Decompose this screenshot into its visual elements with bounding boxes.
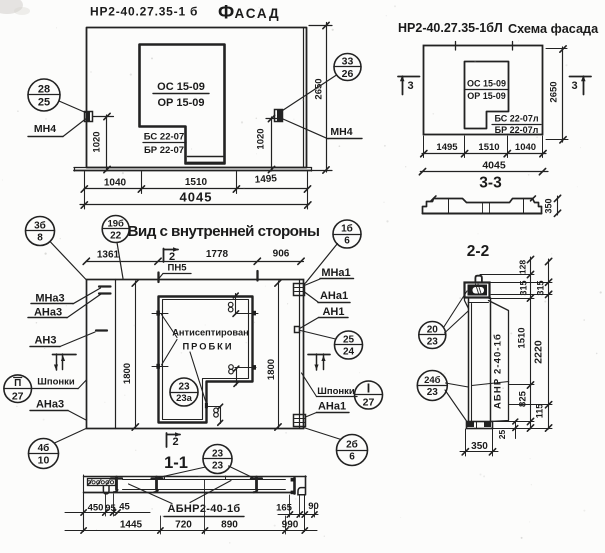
svg-text:Ф: Ф <box>218 3 234 24</box>
svg-text:1800: 1800 <box>266 359 277 380</box>
svg-text:2650: 2650 <box>314 78 325 99</box>
svg-text:4б: 4б <box>38 442 50 454</box>
svg-text:ОР 15-09: ОР 15-09 <box>467 91 506 101</box>
svg-text:МНа3: МНа3 <box>35 293 64 305</box>
svg-text:10: 10 <box>38 454 50 466</box>
svg-text:115: 115 <box>535 404 545 419</box>
svg-text:ОС 15-09: ОС 15-09 <box>467 79 506 89</box>
svg-text:ОР 15-09: ОР 15-09 <box>157 97 204 109</box>
svg-text:1510: 1510 <box>478 142 499 153</box>
svg-text:АНа1: АНа1 <box>320 290 348 302</box>
svg-text:ОС 15-09: ОС 15-09 <box>157 81 205 93</box>
svg-text:890: 890 <box>221 520 238 531</box>
svg-text:23: 23 <box>178 382 190 393</box>
svg-text:БР 22-07л: БР 22-07л <box>495 125 539 135</box>
svg-text:1495: 1495 <box>254 173 277 186</box>
svg-text:20: 20 <box>427 325 439 336</box>
svg-text:23: 23 <box>427 337 439 348</box>
svg-text:1-1: 1-1 <box>164 454 188 472</box>
svg-text:АНа1: АНа1 <box>318 401 346 413</box>
svg-text:ПРОБКИ: ПРОБКИ <box>182 342 233 352</box>
svg-text:НР2-40.27.35-1бЛ: НР2-40.27.35-1бЛ <box>398 21 503 35</box>
svg-text:МН4: МН4 <box>34 123 56 135</box>
svg-text:П: П <box>14 378 21 389</box>
svg-text:1778: 1778 <box>206 249 229 260</box>
svg-text:6: 6 <box>344 236 350 247</box>
svg-text:МНа1: МНа1 <box>321 267 350 279</box>
svg-text:23: 23 <box>427 387 439 398</box>
svg-text:1361: 1361 <box>97 250 120 261</box>
svg-text:АСАД: АСАД <box>235 6 281 21</box>
svg-text:25: 25 <box>38 96 50 108</box>
svg-text:Шпонки: Шпонки <box>37 377 75 388</box>
svg-text:25: 25 <box>343 335 355 346</box>
svg-text:27: 27 <box>363 397 375 409</box>
svg-text:95: 95 <box>105 503 116 514</box>
svg-text:19б: 19б <box>107 219 124 230</box>
svg-text:720: 720 <box>175 520 192 531</box>
svg-text:4045: 4045 <box>482 159 506 171</box>
svg-text:3: 3 <box>571 80 577 92</box>
svg-text:3-3: 3-3 <box>479 175 502 192</box>
svg-text:1040: 1040 <box>104 178 127 189</box>
svg-text:8: 8 <box>37 233 43 244</box>
svg-text:1510: 1510 <box>185 177 208 188</box>
svg-text:1800: 1800 <box>122 363 133 384</box>
svg-text:Схема фасада: Схема фасада <box>508 22 599 36</box>
svg-text:Шпонки: Шпонки <box>317 386 355 397</box>
svg-text:6: 6 <box>349 452 355 463</box>
svg-text:22: 22 <box>110 231 122 242</box>
svg-text:1495: 1495 <box>436 142 458 153</box>
svg-text:ПН5: ПН5 <box>168 263 188 274</box>
svg-text:БР 22-07: БР 22-07 <box>144 145 184 156</box>
svg-text:906: 906 <box>273 249 290 260</box>
svg-text:165: 165 <box>276 503 293 514</box>
svg-text:23: 23 <box>212 461 224 472</box>
svg-text:315: 315 <box>519 280 529 295</box>
svg-text:1510: 1510 <box>517 327 528 348</box>
svg-text:128: 128 <box>518 260 528 274</box>
svg-text:26: 26 <box>342 68 354 80</box>
svg-text:I: I <box>367 382 370 396</box>
svg-text:БС 22-07л: БС 22-07л <box>494 114 538 124</box>
svg-text:990: 990 <box>282 520 299 531</box>
svg-text:2б: 2б <box>346 439 358 451</box>
svg-text:2: 2 <box>169 251 175 263</box>
svg-text:350: 350 <box>544 198 554 213</box>
svg-text:23: 23 <box>212 449 224 460</box>
svg-text:1020: 1020 <box>256 128 267 149</box>
svg-text:АН3: АН3 <box>34 335 56 347</box>
svg-text:4045: 4045 <box>180 190 213 205</box>
svg-text:28: 28 <box>38 84 50 96</box>
svg-text:24: 24 <box>343 347 355 358</box>
svg-text:МН4: МН4 <box>330 126 352 138</box>
svg-text:1020: 1020 <box>92 131 103 152</box>
svg-text:АБНР2-40-1б: АБНР2-40-1б <box>167 503 240 515</box>
svg-text:315: 315 <box>536 280 546 295</box>
svg-text:90: 90 <box>308 501 319 512</box>
svg-text:1445: 1445 <box>120 520 143 531</box>
svg-text:45: 45 <box>119 502 130 513</box>
svg-text:33: 33 <box>342 56 354 68</box>
svg-text:24б: 24б <box>424 375 441 386</box>
svg-text:3б: 3б <box>34 220 46 232</box>
svg-text:2: 2 <box>172 436 178 448</box>
svg-text:Вид с внутренней стороны: Вид с внутренней стороны <box>128 223 320 240</box>
svg-text:Антисептирован: Антисептирован <box>172 328 249 338</box>
svg-text:АБНР 2-40-1б: АБНР 2-40-1б <box>493 333 504 409</box>
svg-text:1б: 1б <box>341 223 353 235</box>
svg-text:25: 25 <box>497 430 507 440</box>
svg-text:27: 27 <box>12 391 24 403</box>
svg-text:НР2-40.27.35-1 б: НР2-40.27.35-1 б <box>90 5 198 19</box>
svg-text:2650: 2650 <box>549 81 560 102</box>
svg-text:2-2: 2-2 <box>467 243 489 260</box>
svg-text:АНа3: АНа3 <box>36 399 64 411</box>
svg-text:АНа3: АНа3 <box>34 307 62 319</box>
svg-text:2220: 2220 <box>533 340 545 364</box>
svg-text:1040: 1040 <box>515 142 536 153</box>
svg-text:23а: 23а <box>176 393 193 404</box>
svg-text:3: 3 <box>407 80 413 92</box>
svg-text:АН1: АН1 <box>322 306 344 318</box>
svg-text:350: 350 <box>471 441 488 452</box>
svg-text:450: 450 <box>88 503 104 514</box>
svg-text:БС 22-07: БС 22-07 <box>144 132 185 143</box>
